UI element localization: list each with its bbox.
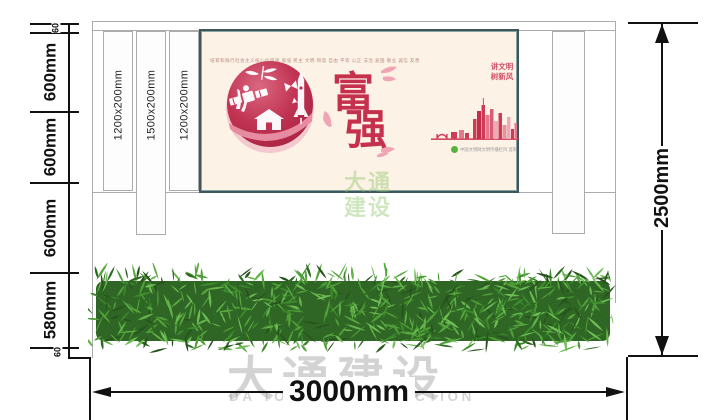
post-1500-right (552, 31, 585, 234)
slogan-line-1: 讲文明 (487, 62, 517, 72)
dim-3000: 3000mm (283, 377, 415, 407)
left-dim-tick (30, 111, 79, 113)
left-extension-line (89, 357, 91, 420)
post-1500-left: 1500x200mm (136, 31, 166, 235)
dim-600-1: 600mm (42, 43, 59, 102)
watermark-center: 大通建设 (344, 170, 394, 220)
pink-leaf-flourishes (319, 65, 405, 161)
billboard-elevation-drawing: 1200x200mm 1500x200mm 1200x200mm 培育和践行社会… (0, 0, 720, 420)
arrow-left-icon (92, 387, 111, 397)
poster-board: 培育和践行社会主义核心价值观 富强 民主 文明 和谐 自由 平等 公正 法治 爱… (199, 29, 519, 193)
skyline-graphic (429, 77, 521, 147)
post-1200-left: 1200x200mm (103, 31, 133, 191)
dim-600-3: 600mm (42, 199, 59, 258)
credit-row: 中国文明网文明传播栏目 监制 (451, 146, 517, 153)
dim-60-bottom: 60 (54, 347, 63, 357)
credit-badge-icon (451, 146, 458, 153)
credit-text: 中国文明网文明传播栏目 监制 (460, 147, 517, 153)
dim-600-2: 600mm (42, 118, 59, 177)
wall-top-line (92, 21, 616, 22)
post-1200-left-2: 1200x200mm (169, 31, 199, 191)
dim-580: 580mm (42, 281, 59, 340)
post-size-label: 1200x200mm (178, 69, 190, 140)
dim-60-top: 60 (52, 23, 61, 33)
left-dim-corner-h (68, 357, 90, 359)
papercut-emblem-graphic (223, 59, 317, 153)
arrow-right-icon (606, 387, 625, 397)
arrow-down-icon (655, 336, 669, 355)
right-extension-line (626, 357, 628, 420)
wall-right-edge (615, 21, 616, 303)
arrow-up-icon (655, 24, 669, 43)
left-dim-tick (30, 182, 79, 184)
left-dim-tick (30, 272, 79, 274)
post-size-label: 1200x200mm (112, 69, 124, 140)
left-dim-line (68, 24, 70, 358)
dim-2500: 2500mm (649, 146, 675, 230)
post-size-label: 1500x200mm (145, 69, 157, 140)
right-dim-tick-bottom (628, 355, 698, 357)
hedge-foliage (88, 263, 620, 360)
